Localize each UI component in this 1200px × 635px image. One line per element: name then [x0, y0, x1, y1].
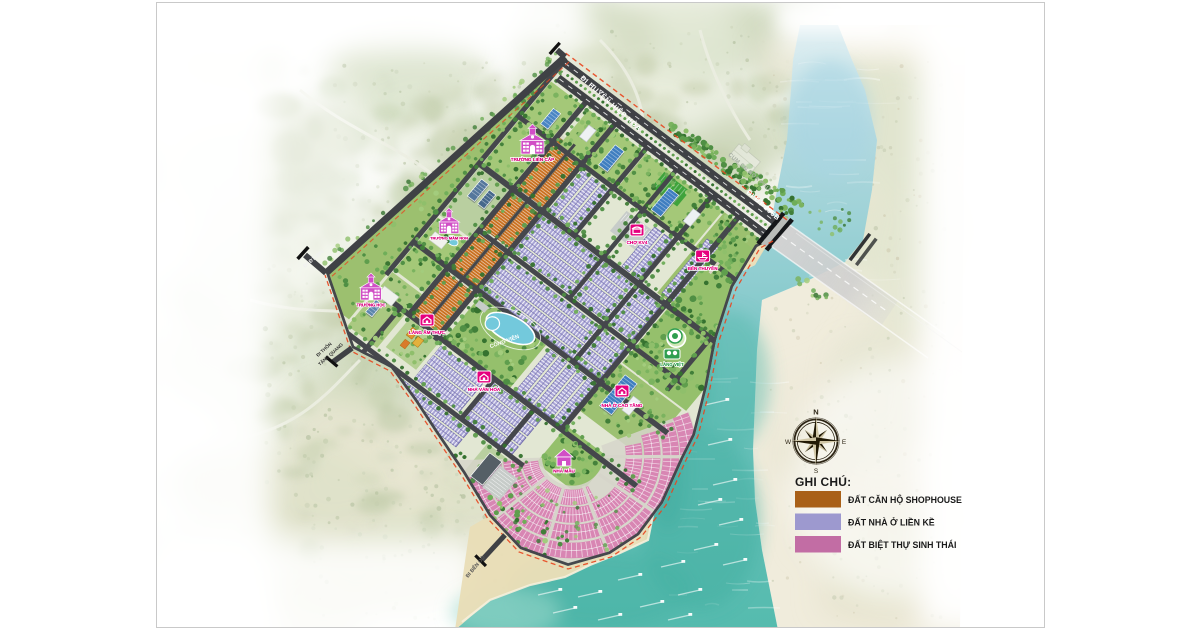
svg-text:NHÀ Ở CAO TẦNG: NHÀ Ở CAO TẦNG	[602, 402, 643, 408]
svg-text:NHÀ MẪU: NHÀ MẪU	[553, 468, 575, 474]
svg-text:ĐẤT CĂN HỘ SHOPHOUSE: ĐẤT CĂN HỘ SHOPHOUSE	[848, 494, 962, 505]
svg-text:CHỢ KV4: CHỢ KV4	[627, 240, 648, 245]
svg-text:ĐẤT BIỆT THỰ SINH THÁI: ĐẤT BIỆT THỰ SINH THÁI	[848, 539, 956, 550]
svg-text:TRƯỜNG HỌC: TRƯỜNG HỌC	[357, 302, 386, 307]
svg-text:GHI CHÚ:: GHI CHÚ:	[795, 474, 851, 489]
svg-text:NHÀ VĂN HÓA: NHÀ VĂN HÓA	[468, 385, 501, 392]
svg-text:N: N	[813, 408, 818, 417]
svg-text:TRƯỜNG LIÊN CẤP: TRƯỜNG LIÊN CẤP	[511, 155, 554, 162]
svg-text:LÀNG ẨM THỰC: LÀNG ẨM THỰC	[409, 329, 446, 335]
svg-text:TRƯỜNG MẦM NON: TRƯỜNG MẦM NON	[430, 235, 468, 240]
svg-text:W: W	[785, 439, 792, 446]
svg-text:E: E	[842, 439, 847, 446]
svg-text:LÀNG VIỆT: LÀNG VIỆT	[660, 362, 684, 367]
svg-text:S: S	[814, 468, 819, 475]
svg-text:BẾN THUYỀN: BẾN THUYỀN	[688, 265, 719, 271]
svg-text:ĐẤT NHÀ Ở LIỀN KỀ: ĐẤT NHÀ Ở LIỀN KỀ	[848, 517, 935, 528]
